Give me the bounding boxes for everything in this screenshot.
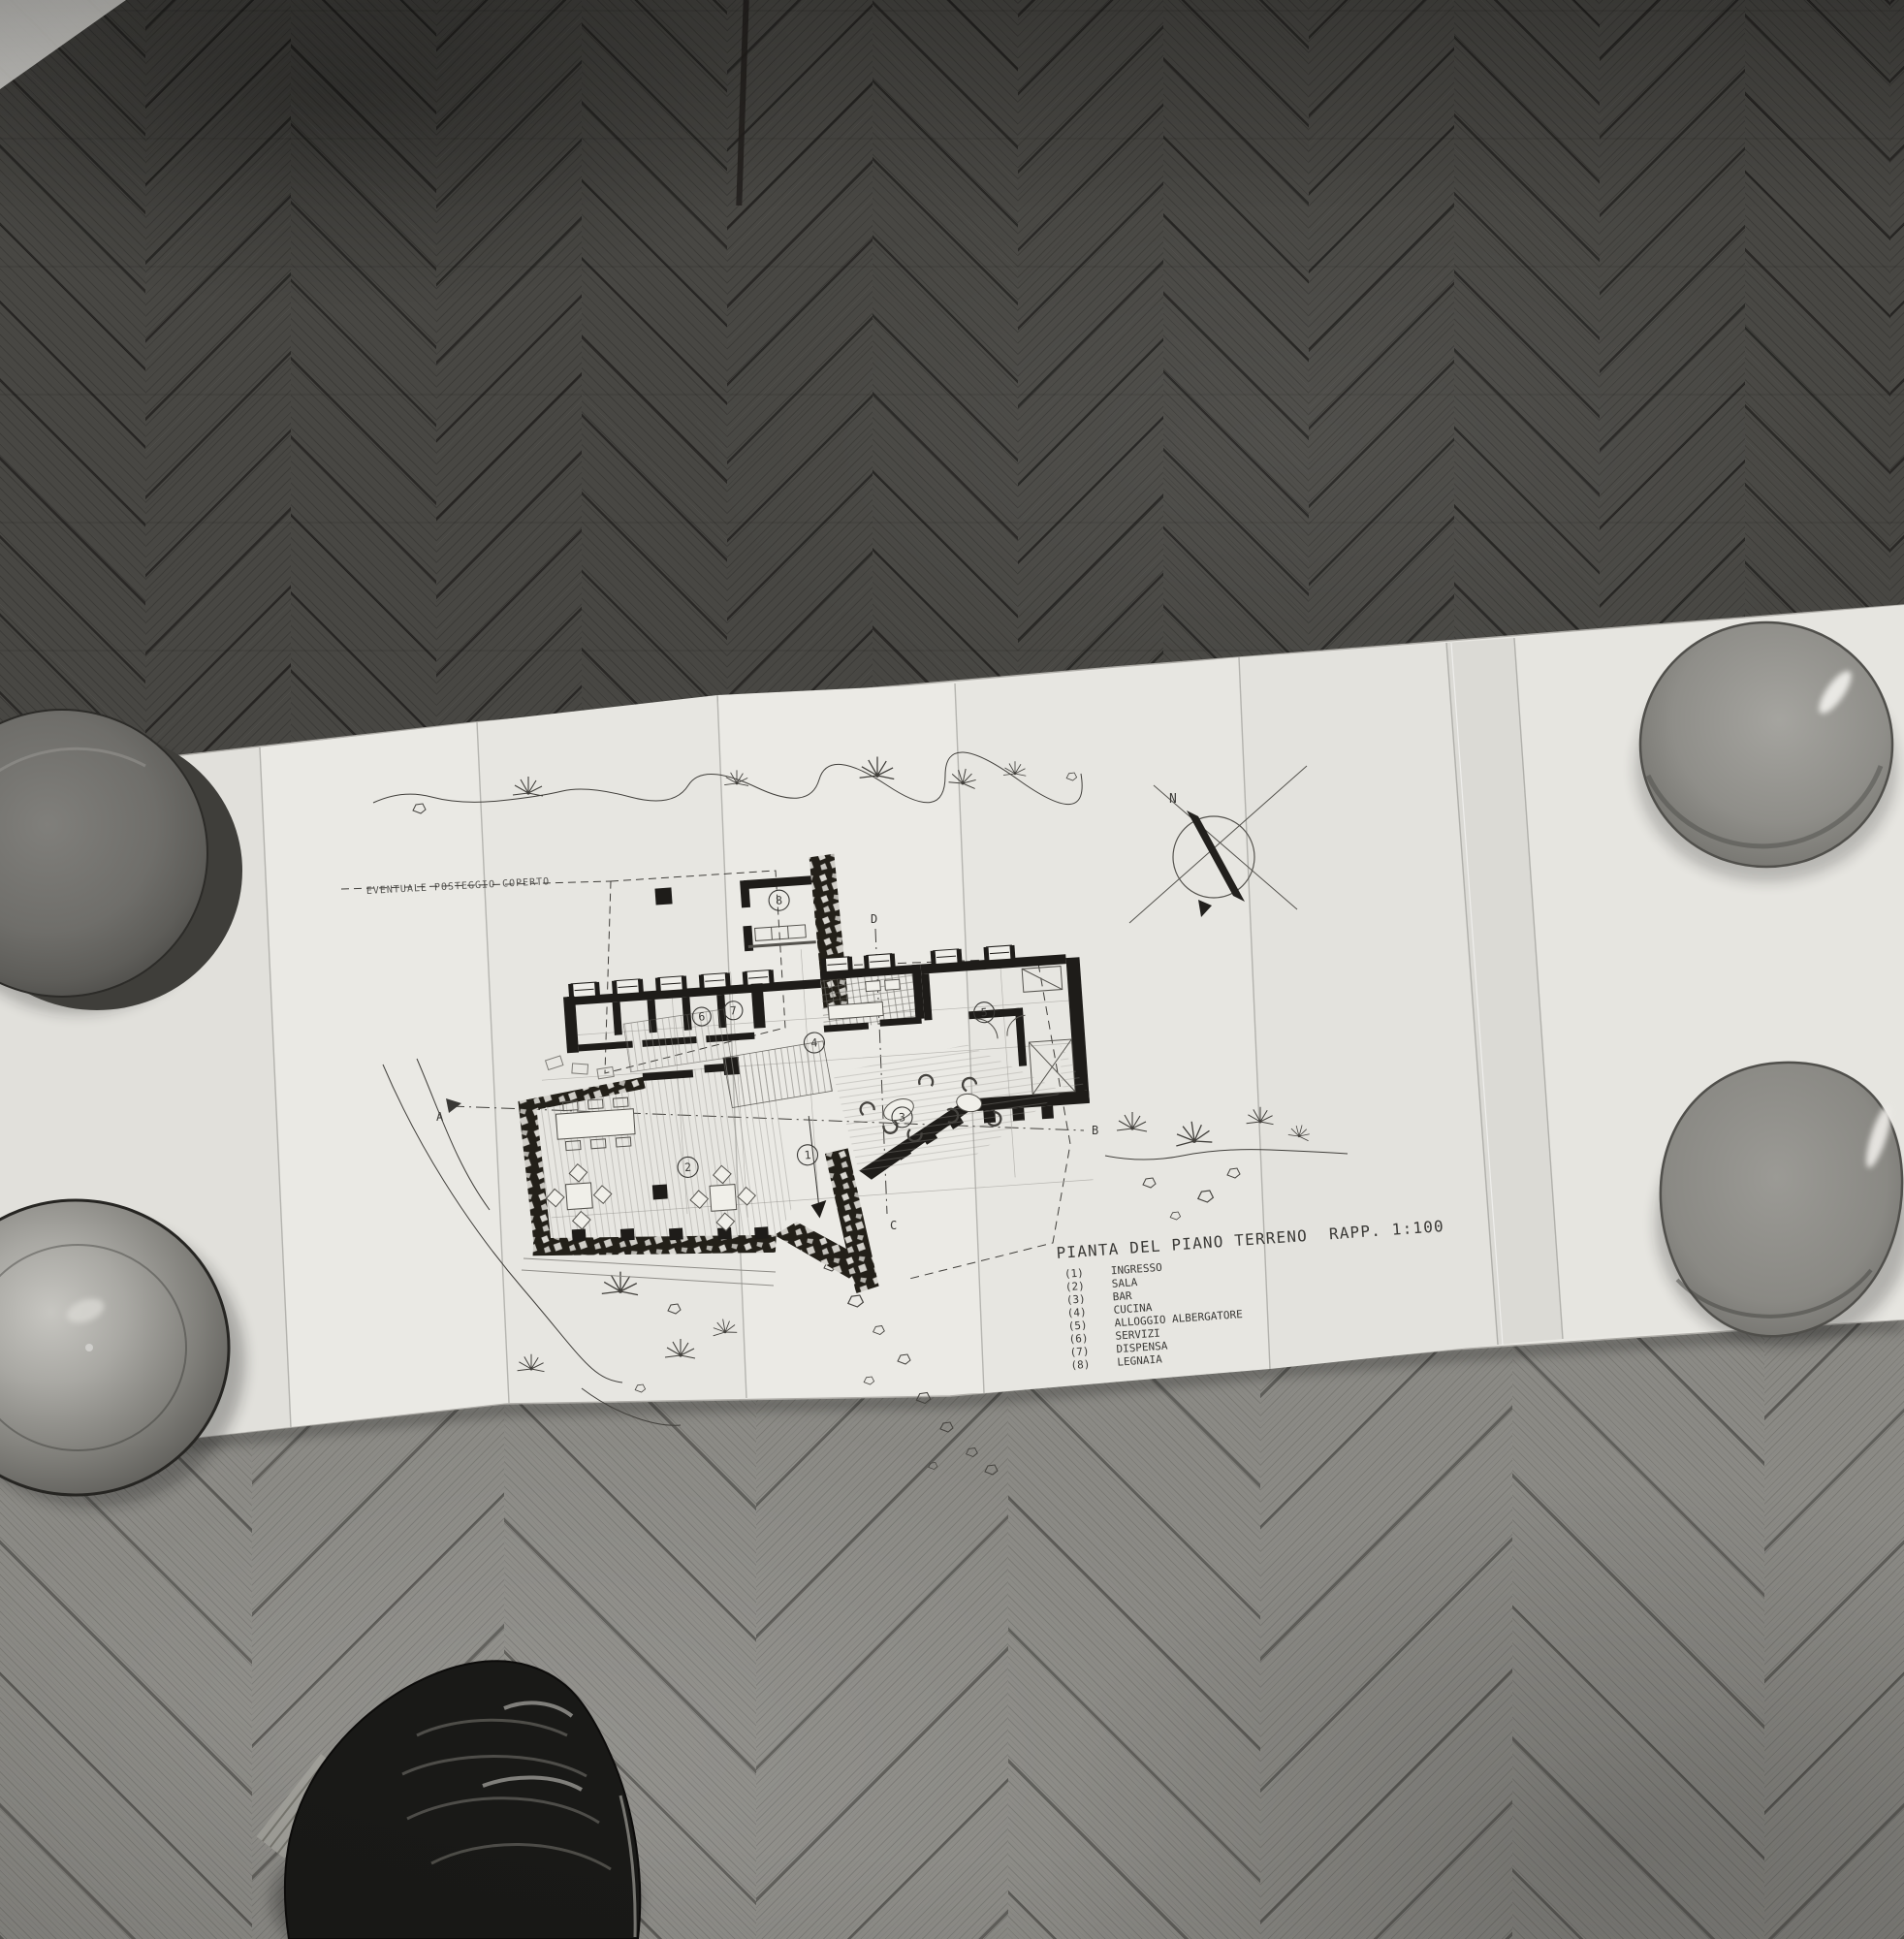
dish-bottom-right — [1656, 1063, 1904, 1348]
shoe — [271, 1661, 640, 1939]
svg-text:4: 4 — [810, 1035, 818, 1049]
svg-text:6: 6 — [698, 1009, 706, 1023]
section-letter-b: B — [1092, 1124, 1098, 1137]
compass-north-label: N — [1169, 792, 1177, 807]
scene-overlay: N — [0, 0, 1904, 1939]
paper-panels — [0, 605, 1904, 1459]
svg-text:5: 5 — [980, 1005, 988, 1019]
photo-of-floor-plan: N — [0, 0, 1904, 1939]
svg-text:2: 2 — [684, 1160, 692, 1174]
svg-text:3: 3 — [899, 1110, 906, 1124]
svg-text:8: 8 — [776, 893, 783, 906]
section-letter-c: C — [890, 1219, 897, 1232]
bowl-top-right — [1635, 622, 1897, 882]
carport-pillar — [654, 887, 672, 905]
drawing-sheet — [0, 605, 1904, 1459]
section-letter-d: D — [871, 912, 877, 926]
section-letter-a: A — [436, 1110, 444, 1124]
svg-text:1: 1 — [804, 1148, 811, 1161]
svg-text:7: 7 — [729, 1003, 737, 1017]
